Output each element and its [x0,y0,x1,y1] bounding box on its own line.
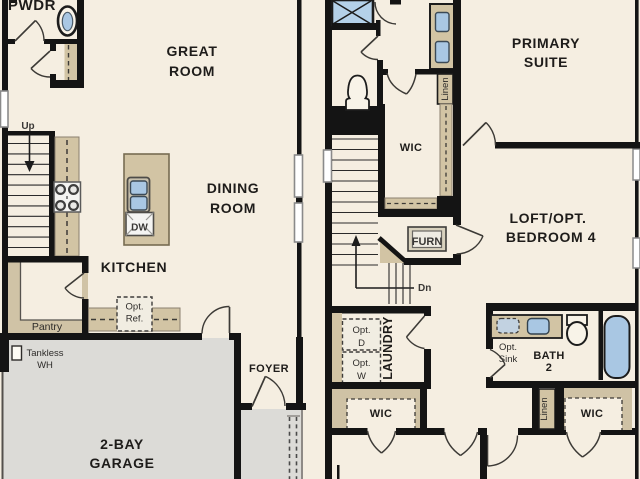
svg-text:LOFT/OPT.: LOFT/OPT. [510,210,587,226]
svg-text:GARAGE: GARAGE [89,455,154,471]
svg-text:D: D [358,338,365,349]
svg-text:FURN: FURN [412,236,443,248]
svg-text:DW: DW [131,223,148,234]
svg-text:Opt.: Opt. [353,325,371,336]
svg-text:Opt.: Opt. [353,358,371,369]
svg-text:KITCHEN: KITCHEN [101,259,167,275]
svg-text:SUITE: SUITE [524,54,568,70]
svg-text:Up: Up [21,121,34,132]
svg-text:LAUNDRY: LAUNDRY [381,316,395,380]
svg-text:DINING: DINING [207,180,260,196]
svg-text:WIC: WIC [400,142,423,154]
svg-text:WH: WH [37,360,53,371]
svg-text:ROOM: ROOM [169,63,215,79]
svg-text:GREAT: GREAT [167,43,218,59]
svg-text:Tankless: Tankless [27,348,64,359]
svg-text:Ref.: Ref. [126,314,143,325]
svg-text:Linen: Linen [440,77,451,100]
svg-text:WIC: WIC [370,408,393,420]
svg-text:PWDR: PWDR [8,0,56,14]
svg-text:WIC: WIC [581,408,604,420]
svg-text:2: 2 [546,362,553,374]
svg-text:Sink: Sink [499,354,518,365]
svg-text:BEDROOM 4: BEDROOM 4 [506,229,596,245]
svg-text:2-BAY: 2-BAY [100,436,144,452]
svg-text:ROOM: ROOM [210,200,256,216]
svg-text:Dn: Dn [418,283,431,294]
svg-text:FOYER: FOYER [249,363,289,375]
svg-text:Opt.: Opt. [499,342,517,353]
svg-text:Linen: Linen [539,397,550,420]
svg-text:W: W [357,371,366,382]
svg-text:Opt.: Opt. [126,302,144,313]
svg-text:BATH: BATH [533,350,564,362]
svg-text:Pantry: Pantry [32,321,63,333]
svg-text:PRIMARY: PRIMARY [512,35,580,51]
